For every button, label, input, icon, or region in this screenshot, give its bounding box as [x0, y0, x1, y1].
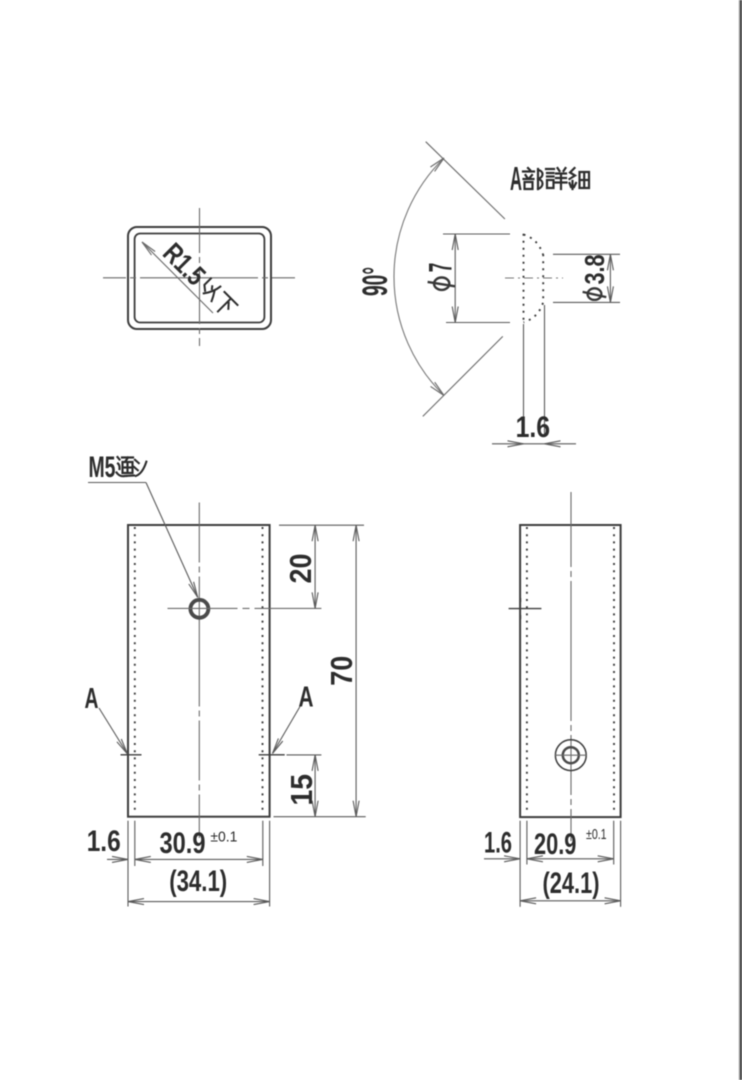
svg-text:1.6: 1.6 — [484, 827, 512, 860]
svg-text:20: 20 — [283, 554, 318, 584]
svg-text:15: 15 — [284, 774, 319, 806]
svg-text:±0.1: ±0.1 — [210, 829, 237, 846]
svg-text:7: 7 — [423, 263, 459, 273]
svg-text:A: A — [299, 682, 314, 714]
svg-text:90°: 90° — [356, 267, 395, 296]
svg-text:3.8: 3.8 — [579, 255, 610, 285]
svg-text:A: A — [510, 160, 522, 197]
svg-text:M5: M5 — [89, 451, 116, 484]
svg-text:(24.1): (24.1) — [543, 867, 600, 900]
svg-text:70: 70 — [324, 656, 359, 686]
svg-text:A: A — [85, 683, 99, 715]
svg-text:±0.1: ±0.1 — [586, 826, 607, 843]
svg-text:20.9: 20.9 — [534, 828, 576, 861]
svg-text:1.6: 1.6 — [87, 825, 121, 858]
svg-text:(34.1): (34.1) — [169, 865, 227, 898]
svg-text:1.6: 1.6 — [516, 411, 551, 444]
svg-text:30.9: 30.9 — [160, 827, 206, 860]
